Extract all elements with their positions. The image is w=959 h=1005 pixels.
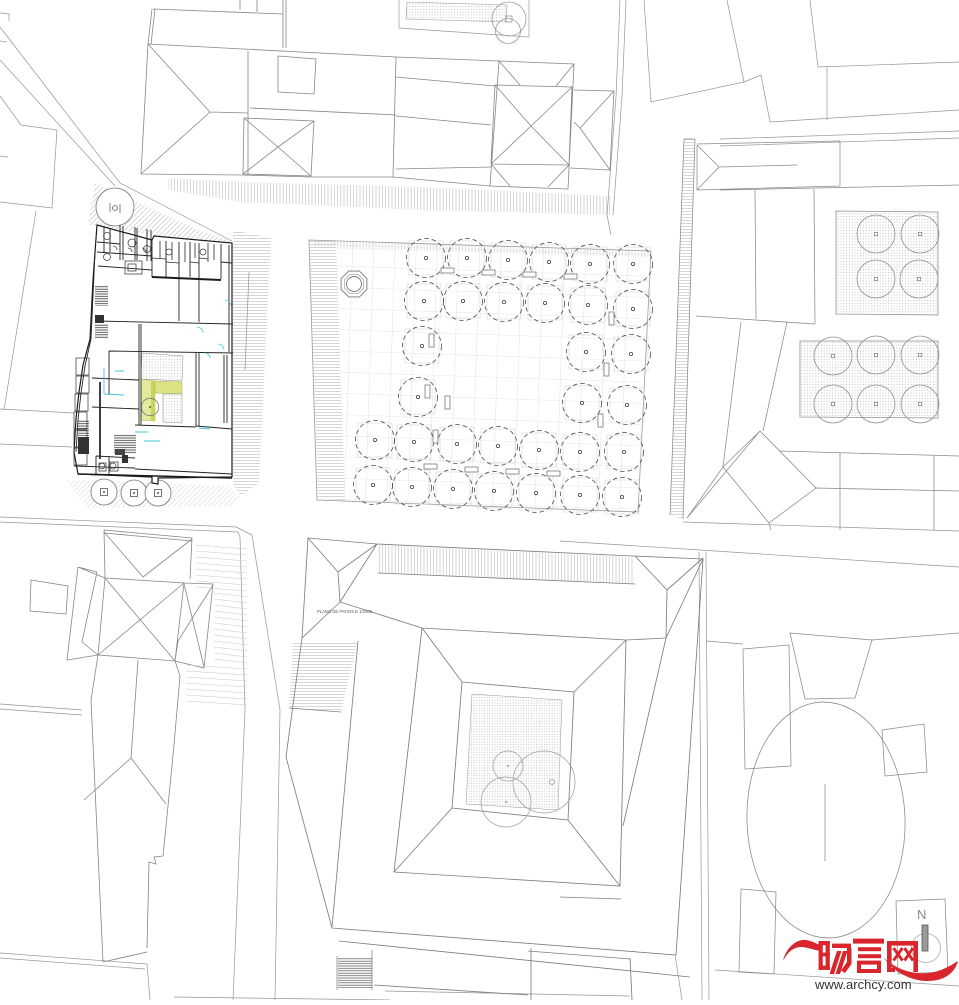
svg-text:www.archcy.com: www.archcy.com [814,977,912,992]
svg-text:PLANO DE PATIOS E 1/1000.: PLANO DE PATIOS E 1/1000. [317,609,373,614]
svg-text:N: N [917,907,926,922]
